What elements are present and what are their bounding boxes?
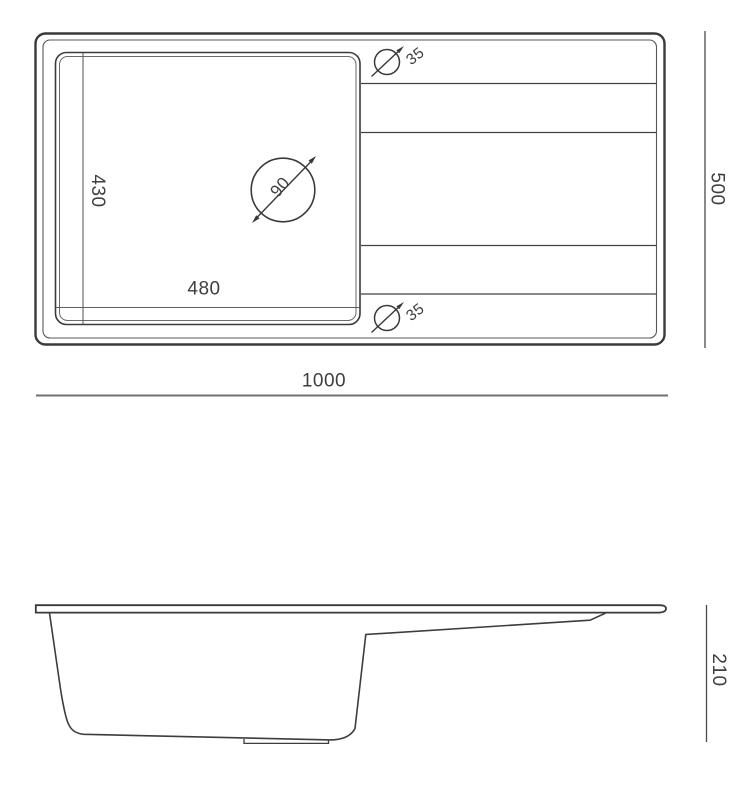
tap-hole-top-diameter-symbol: [372, 46, 405, 77]
dim-overall-height-label: 210: [708, 653, 729, 686]
top-view-rim-inner-edge: [43, 40, 657, 338]
tap-hole-bottom-diameter-symbol: [372, 302, 405, 333]
main-drain-label: 90: [266, 173, 293, 200]
sink-technical-drawing: 35 35 90 430 480 500: [0, 0, 755, 800]
top-view-outer-edge: [36, 34, 665, 345]
side-view: [36, 605, 666, 743]
top-view: 35 35 90 430 480: [36, 34, 665, 345]
side-view-bowl-profile: [50, 613, 606, 740]
dim-overall-width-label: 1000: [302, 371, 346, 392]
side-view-dimensions: 210: [707, 605, 730, 742]
sink-technical-drawing-page: 35 35 90 430 480 500: [0, 0, 755, 800]
side-view-rim-profile: [36, 605, 666, 612]
tap-hole-bottom-label: 35: [403, 300, 428, 325]
dim-bowl-depth-label: 430: [87, 174, 108, 207]
top-view-dimensions: 500 1000: [36, 31, 728, 396]
dim-overall-depth-label: 500: [707, 172, 728, 205]
dim-bowl-width-label: 480: [187, 279, 220, 300]
tap-hole-top-label: 35: [403, 44, 428, 69]
